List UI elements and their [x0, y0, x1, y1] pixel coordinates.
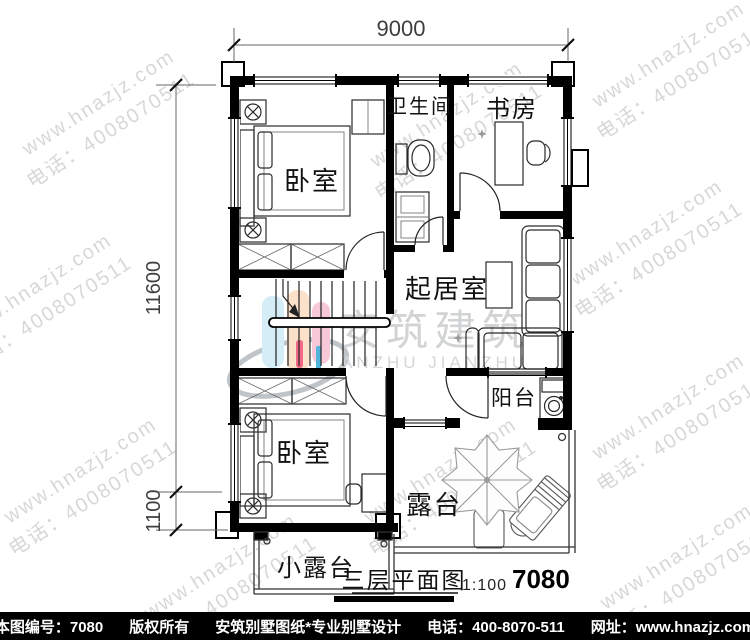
- stair-handrail: [269, 318, 390, 327]
- window: [228, 296, 241, 340]
- title-block: 三层平面图 1:100 7080: [334, 564, 570, 602]
- room-label-bedroom-bottom: 卧室: [276, 438, 332, 468]
- door-bedroom-bottom: [346, 376, 386, 416]
- room-label-balcony: 阳台: [491, 387, 537, 410]
- door-study: [460, 173, 500, 211]
- room-label-study: 书房: [486, 96, 538, 123]
- wall-flue: [572, 150, 588, 186]
- light-symbol: [477, 129, 487, 139]
- window: [488, 367, 546, 378]
- chair: [346, 484, 361, 504]
- drawing-title: 三层平面图: [342, 567, 467, 593]
- study-furniture: [477, 122, 550, 185]
- desk: [495, 122, 523, 185]
- door-balcony: [446, 376, 488, 418]
- room-label-bedroom-top: 卧室: [284, 166, 340, 196]
- window: [228, 424, 241, 502]
- drawing-sheet: www.hnazjz.com电话：4008070511 www.hnazjz.c…: [0, 0, 750, 640]
- room-label-living: 起居室: [405, 274, 489, 304]
- footer-brand: 安筑别墅图纸*专业别墅设计: [215, 616, 401, 637]
- drawing-scale: 1:100: [462, 577, 507, 594]
- footer-website: 网址：www.hnazjz.com: [591, 616, 750, 637]
- window: [468, 74, 548, 87]
- footer-bar: 本图编号：7080 版权所有 安筑别墅图纸*专业别墅设计 电话：400-8070…: [0, 612, 750, 640]
- coffee-table: [486, 262, 512, 308]
- window: [561, 238, 574, 332]
- window: [254, 74, 336, 87]
- room-label-bathroom: 卫生间: [387, 95, 453, 118]
- dimension-top-label: 9000: [377, 16, 426, 41]
- logo-text: 安筑建筑: [338, 307, 530, 354]
- chair: [527, 141, 545, 165]
- footer-plan-number: 本图编号：7080: [0, 616, 103, 637]
- footer-copyright: 版权所有: [129, 616, 189, 637]
- dresser: [362, 474, 388, 512]
- window: [228, 118, 241, 208]
- window: [398, 74, 440, 87]
- room-label-terrace: 露台: [406, 490, 462, 520]
- floor-plan: 安筑建筑 ANZHU JIANZHU: [0, 0, 750, 612]
- drawing-number: 7080: [512, 564, 570, 594]
- dimension-left-main-label: 11600: [143, 261, 165, 315]
- door-bedroom-top: [346, 232, 384, 270]
- footer-phone: 电话：400-8070-511: [427, 616, 565, 637]
- window: [404, 417, 446, 429]
- bathroom-fixtures: [396, 140, 434, 242]
- dimension-left-small-label: 1100: [143, 489, 165, 532]
